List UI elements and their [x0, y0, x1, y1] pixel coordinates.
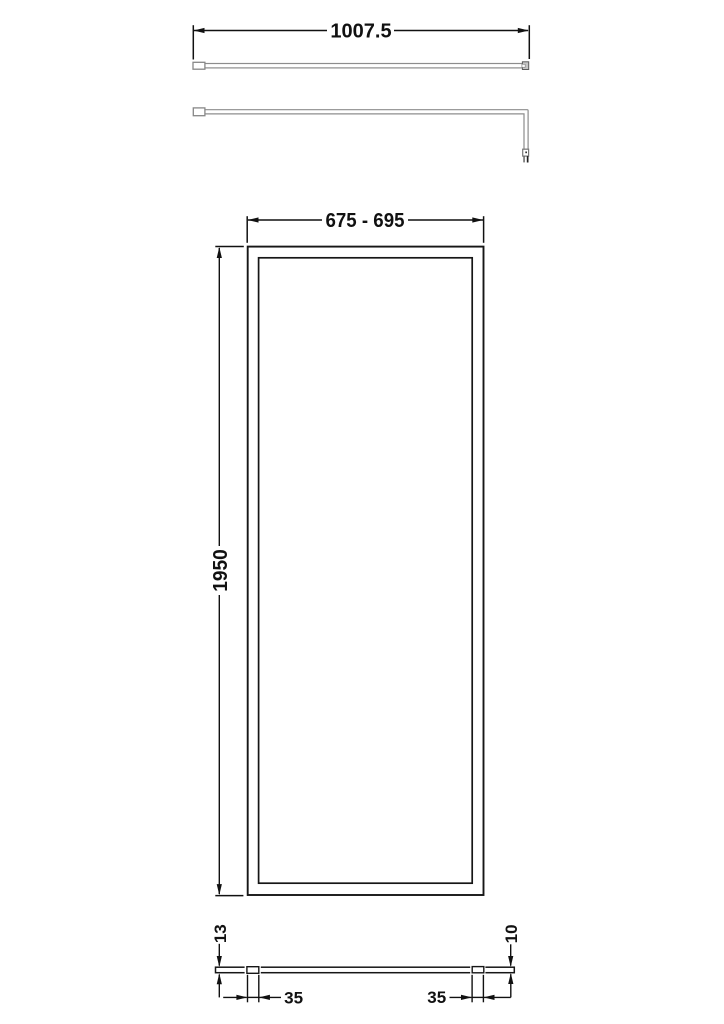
svg-text:35: 35: [427, 988, 446, 1007]
svg-text:675 - 695: 675 - 695: [326, 210, 405, 232]
svg-text:10: 10: [502, 924, 521, 943]
svg-text:35: 35: [284, 989, 303, 1008]
svg-text:13: 13: [211, 924, 230, 943]
svg-text:1007.5: 1007.5: [330, 21, 391, 43]
svg-text:1950: 1950: [210, 549, 232, 592]
